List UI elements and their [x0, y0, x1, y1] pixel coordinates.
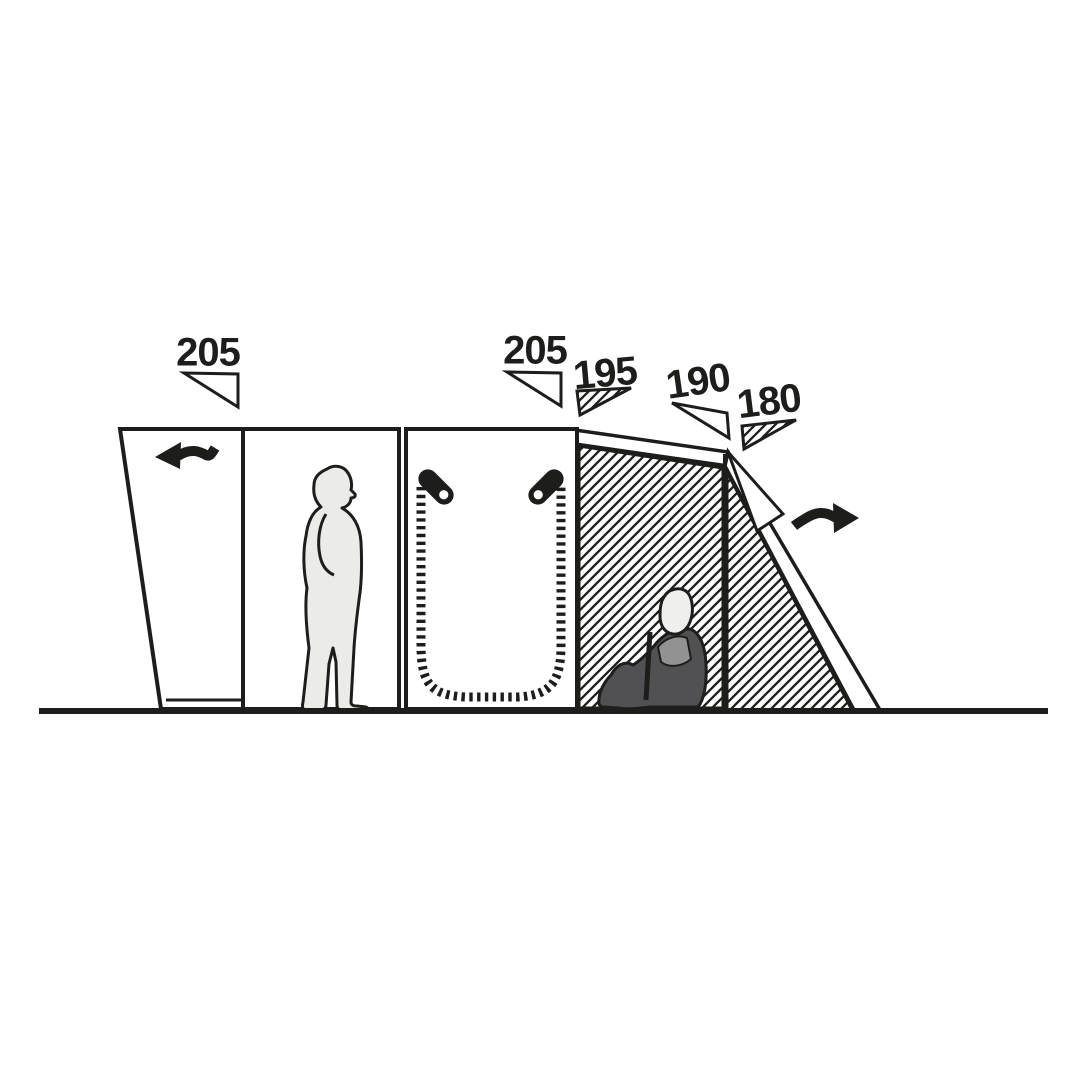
seated-person-head: [660, 589, 692, 634]
height-label-205b: 205: [503, 329, 567, 374]
height-label-180: 180: [735, 376, 804, 428]
tent-outline: [120, 429, 880, 710]
pointer-triangle-190: [672, 403, 729, 438]
pointer-triangle-205b: [507, 372, 561, 406]
airflow-right-arrow-icon: [794, 503, 859, 533]
seated-person-chest: [658, 636, 691, 665]
tent-height-diagram: 205 205 195 190 180: [0, 0, 1080, 1080]
front-porch-panel: [120, 429, 243, 709]
pointer-triangle-205a: [184, 373, 238, 407]
diagram-artwork: [0, 0, 1080, 1080]
height-label-195: 195: [571, 349, 638, 399]
height-label-205a: 205: [176, 331, 240, 376]
height-label-190: 190: [663, 355, 732, 408]
